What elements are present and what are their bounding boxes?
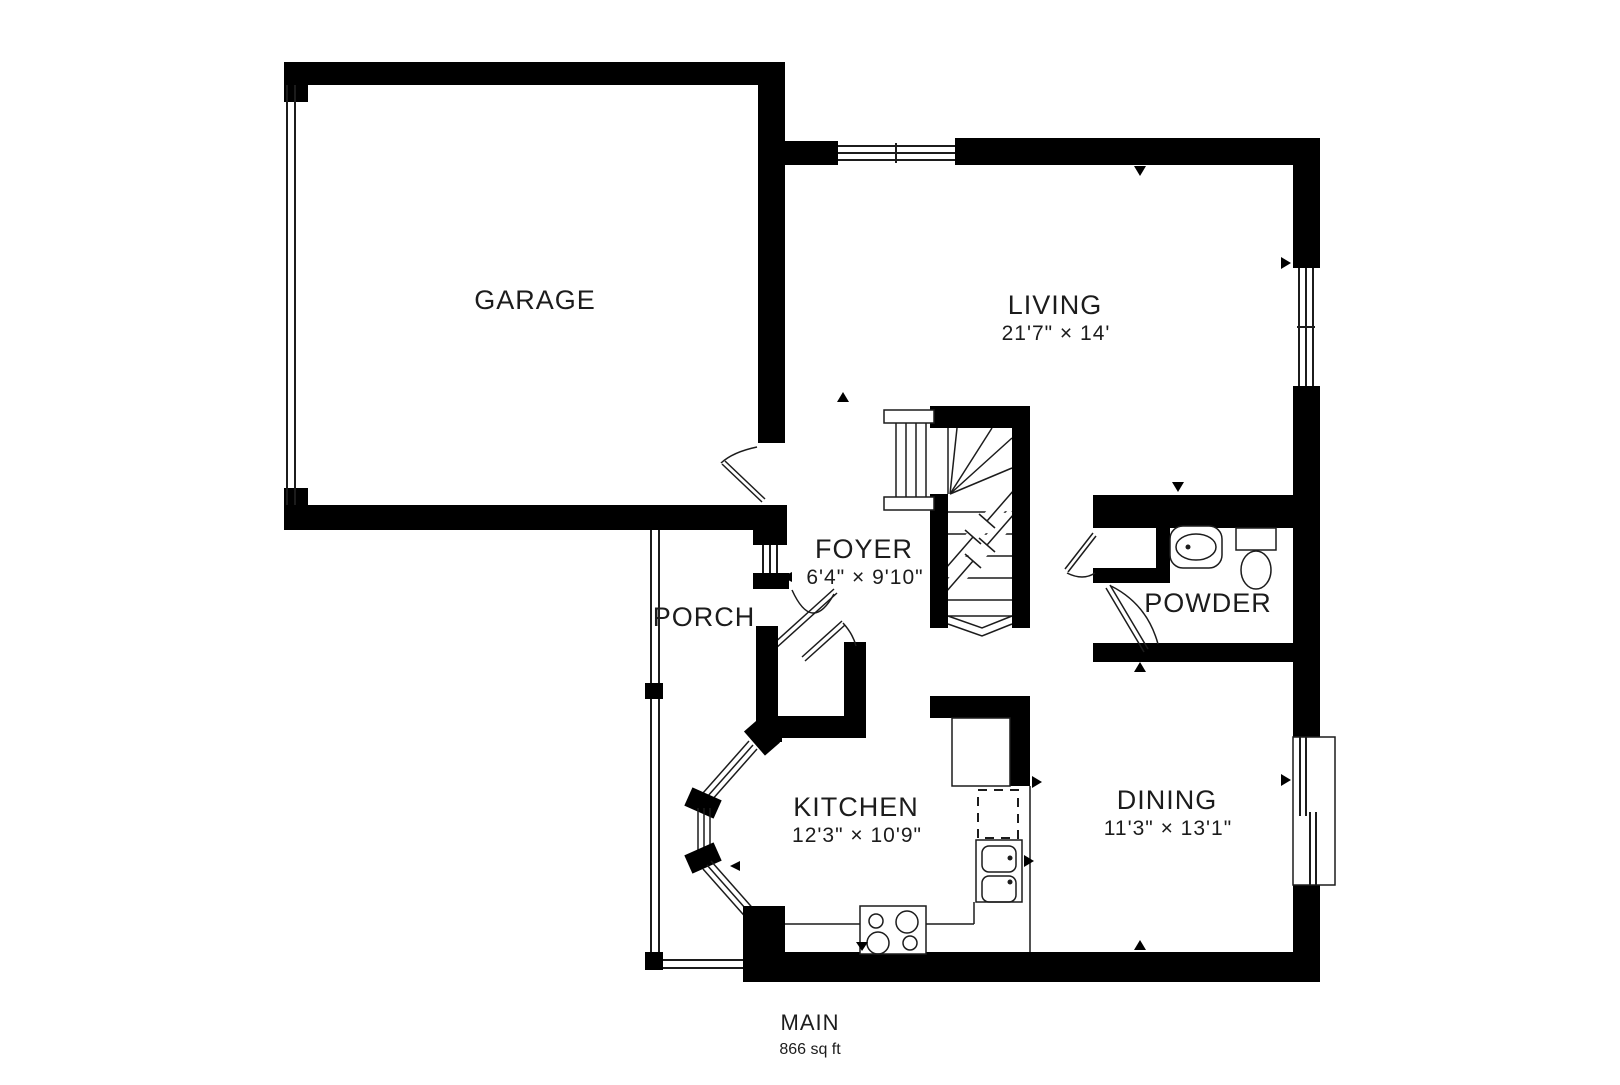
stairs <box>930 406 1030 636</box>
floor-name-label: MAIN <box>781 1010 840 1035</box>
dining-label: DINING <box>1117 785 1218 815</box>
kitchen-sink-icon <box>976 840 1022 902</box>
toilet-icon <box>1236 528 1276 589</box>
floor-plan-page: GARAGE LIVING 21'7" × 14' FOYER 6'4" × 9… <box>0 0 1620 1080</box>
kitchen-label: KITCHEN <box>793 792 919 822</box>
fridge-icon <box>952 718 1010 786</box>
floor-plan-canvas: GARAGE LIVING 21'7" × 14' FOYER 6'4" × 9… <box>0 0 1620 1080</box>
garage-interior-door <box>721 447 765 502</box>
kitchen-dims: 12'3" × 10'9" <box>792 824 922 847</box>
living-right-window <box>1297 268 1315 386</box>
dining-dims: 11'3" × 13'1" <box>1104 817 1232 840</box>
foyer-label: FOYER <box>815 534 913 564</box>
floor-area-label: 866 sq ft <box>779 1041 841 1058</box>
foyer-dims: 6'4" × 9'10" <box>806 566 923 589</box>
powder-sink-icon <box>1170 526 1222 568</box>
porch <box>645 530 748 970</box>
powder-room-walls <box>1093 495 1320 662</box>
stove-icon <box>860 906 926 954</box>
powder-label: POWDER <box>1144 588 1272 618</box>
dining-sliding-door <box>1293 737 1335 885</box>
garage-label: GARAGE <box>474 285 596 315</box>
stair-railing <box>884 410 934 510</box>
living-label: LIVING <box>1008 290 1103 320</box>
dishwasher-icon <box>978 790 1018 838</box>
living-dims: 21'7" × 14' <box>1002 322 1111 345</box>
living-top-window <box>838 143 955 163</box>
porch-label: PORCH <box>653 602 756 632</box>
kitchen-bay-window <box>684 716 785 982</box>
